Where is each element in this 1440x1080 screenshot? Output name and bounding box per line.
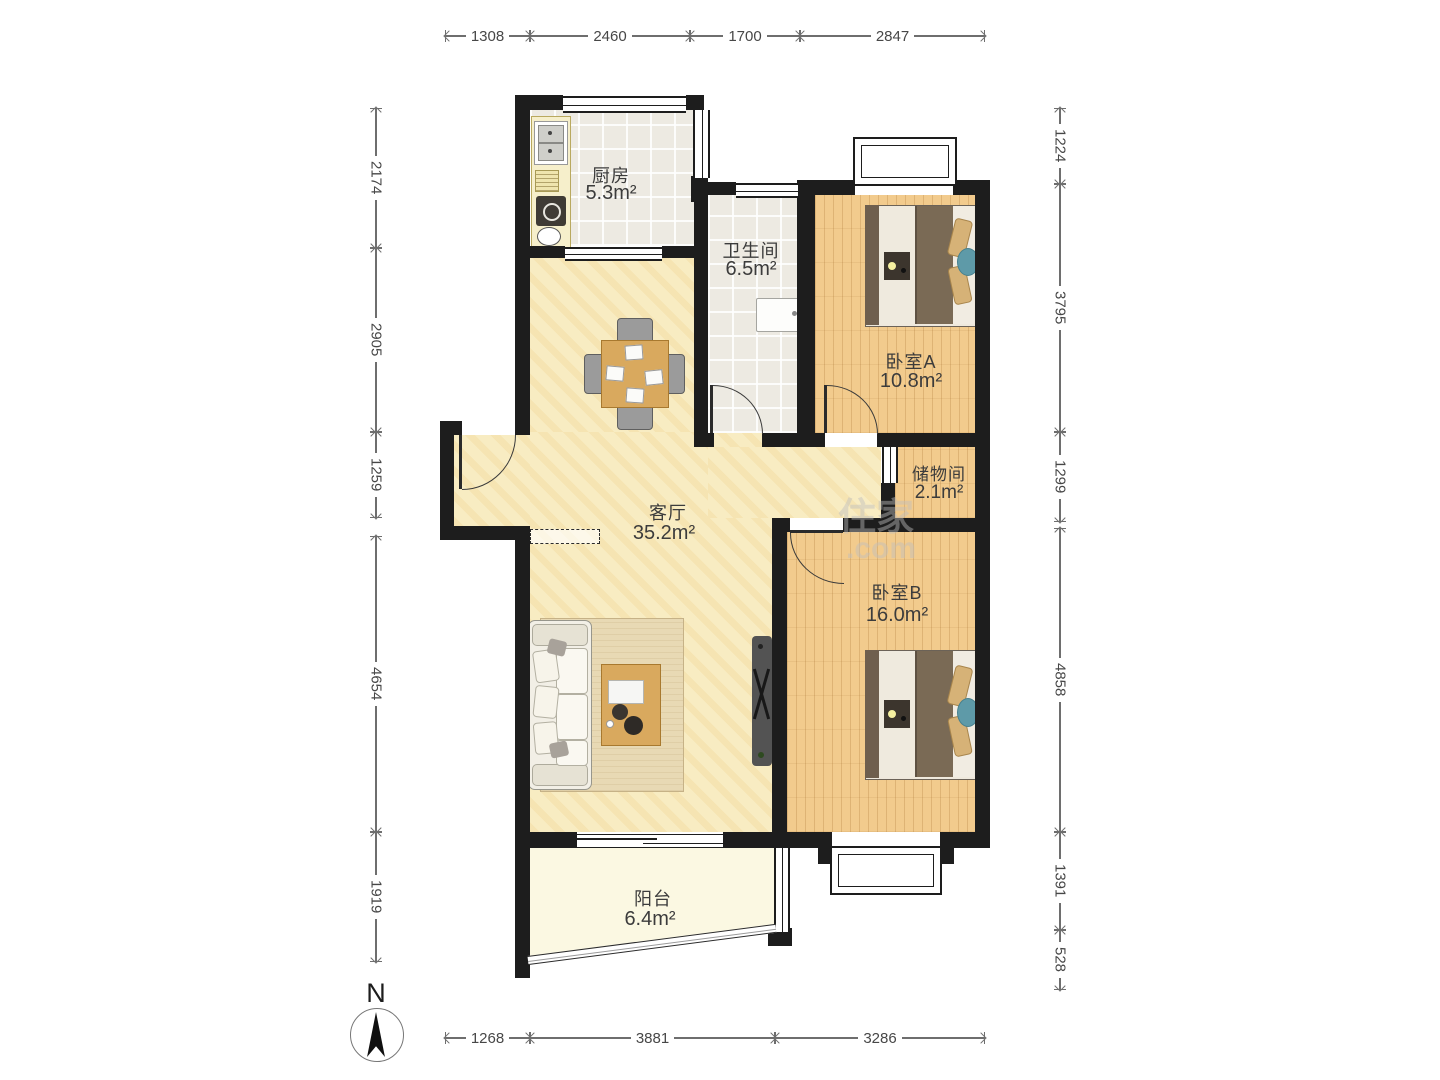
plate-icon (644, 369, 663, 386)
plant-icon (758, 752, 764, 758)
lamp-icon (901, 268, 906, 273)
bathroom-window (736, 183, 798, 198)
kitchen-pass-window (565, 247, 662, 261)
wall (694, 433, 714, 447)
wall (797, 433, 825, 447)
balcony-side-window (774, 848, 790, 932)
sofa-back-cushion (532, 685, 559, 719)
floor-plan: 1308 2460 1700 2847 1268 3881 3286 2174 … (0, 0, 1440, 1080)
wall (694, 195, 708, 447)
lamp-icon (901, 716, 906, 721)
wall (440, 421, 454, 540)
bedroom-b-bay-window (830, 846, 942, 895)
sink-drain-icon (548, 149, 552, 153)
kitchen-side-window (693, 110, 710, 178)
wall (787, 832, 832, 848)
dim-left-3: 1259 (368, 432, 384, 518)
balcony-sliding-door (577, 834, 723, 848)
dim-bottom-2: 3881 (530, 1030, 775, 1046)
bedroom-a-area: 10.8m² (871, 370, 951, 393)
dim-right-1: 1224 (1052, 108, 1068, 184)
wall (797, 180, 815, 447)
compass-north-label: N (360, 978, 392, 1009)
wall (895, 433, 990, 447)
wall (877, 433, 895, 447)
sink-drain-icon (548, 131, 552, 135)
bed-b-footboard (865, 650, 879, 778)
speaker-icon (758, 644, 763, 649)
bed-b-blanket (915, 651, 955, 777)
wall (762, 433, 800, 447)
lamp-icon (888, 710, 896, 718)
sofa-seat-cushion (556, 694, 588, 740)
cup-icon (606, 720, 614, 728)
storage-door (882, 447, 898, 483)
bedroom-a-bay-window (853, 137, 957, 186)
wall (515, 246, 565, 258)
dim-bottom-3: 3286 (775, 1030, 985, 1046)
watermark-domain: .com (846, 532, 916, 566)
kitchen-window (563, 96, 686, 113)
dim-bottom-1: 1268 (445, 1030, 530, 1046)
sofa-armrest (532, 764, 588, 786)
beam-dashed-line (530, 529, 600, 544)
wall (515, 526, 530, 848)
wall (772, 518, 787, 848)
bowl-icon (612, 704, 628, 720)
wall (686, 95, 704, 110)
dim-left-4: 4654 (368, 536, 384, 832)
lamp-icon (888, 262, 896, 270)
dim-right-6: 528 (1052, 930, 1068, 990)
dim-top-2: 2460 (530, 28, 690, 44)
dim-top-3: 1700 (690, 28, 800, 44)
dim-left-1: 2174 (368, 108, 384, 248)
dim-right-2: 3795 (1052, 184, 1068, 432)
living-room-area: 35.2m² (619, 522, 709, 545)
wall (815, 180, 855, 195)
plate-icon (605, 365, 624, 382)
wall (940, 832, 990, 848)
dim-right-5: 1391 (1052, 832, 1068, 930)
dim-top-1: 1308 (445, 28, 530, 44)
plate-icon (625, 387, 644, 403)
bedroom-b-label: 卧室B (857, 579, 937, 605)
bathroom-area: 6.5m² (711, 258, 791, 281)
wall (723, 832, 787, 848)
wall (975, 180, 990, 848)
wall (700, 182, 736, 195)
bed-a-footboard (865, 205, 879, 325)
bed-a-blanket (915, 206, 955, 324)
dim-top-4: 2847 (800, 28, 985, 44)
bedroom-b-area: 16.0m² (857, 604, 937, 627)
dim-right-4: 4858 (1052, 528, 1068, 832)
dim-right-3: 1299 (1052, 432, 1068, 522)
kitchen-hob (535, 170, 559, 192)
tray (608, 680, 644, 704)
wall (515, 95, 530, 435)
bowl-icon (624, 716, 643, 735)
plate-icon (624, 344, 643, 360)
kitchen-dial (537, 227, 561, 246)
dim-left-2: 2905 (368, 248, 384, 432)
burner-ring-icon (543, 203, 561, 221)
wall (515, 832, 577, 848)
balcony-area: 6.4m² (610, 908, 690, 931)
kitchen-area: 5.3m² (570, 182, 652, 205)
dim-left-5: 1919 (368, 832, 384, 962)
